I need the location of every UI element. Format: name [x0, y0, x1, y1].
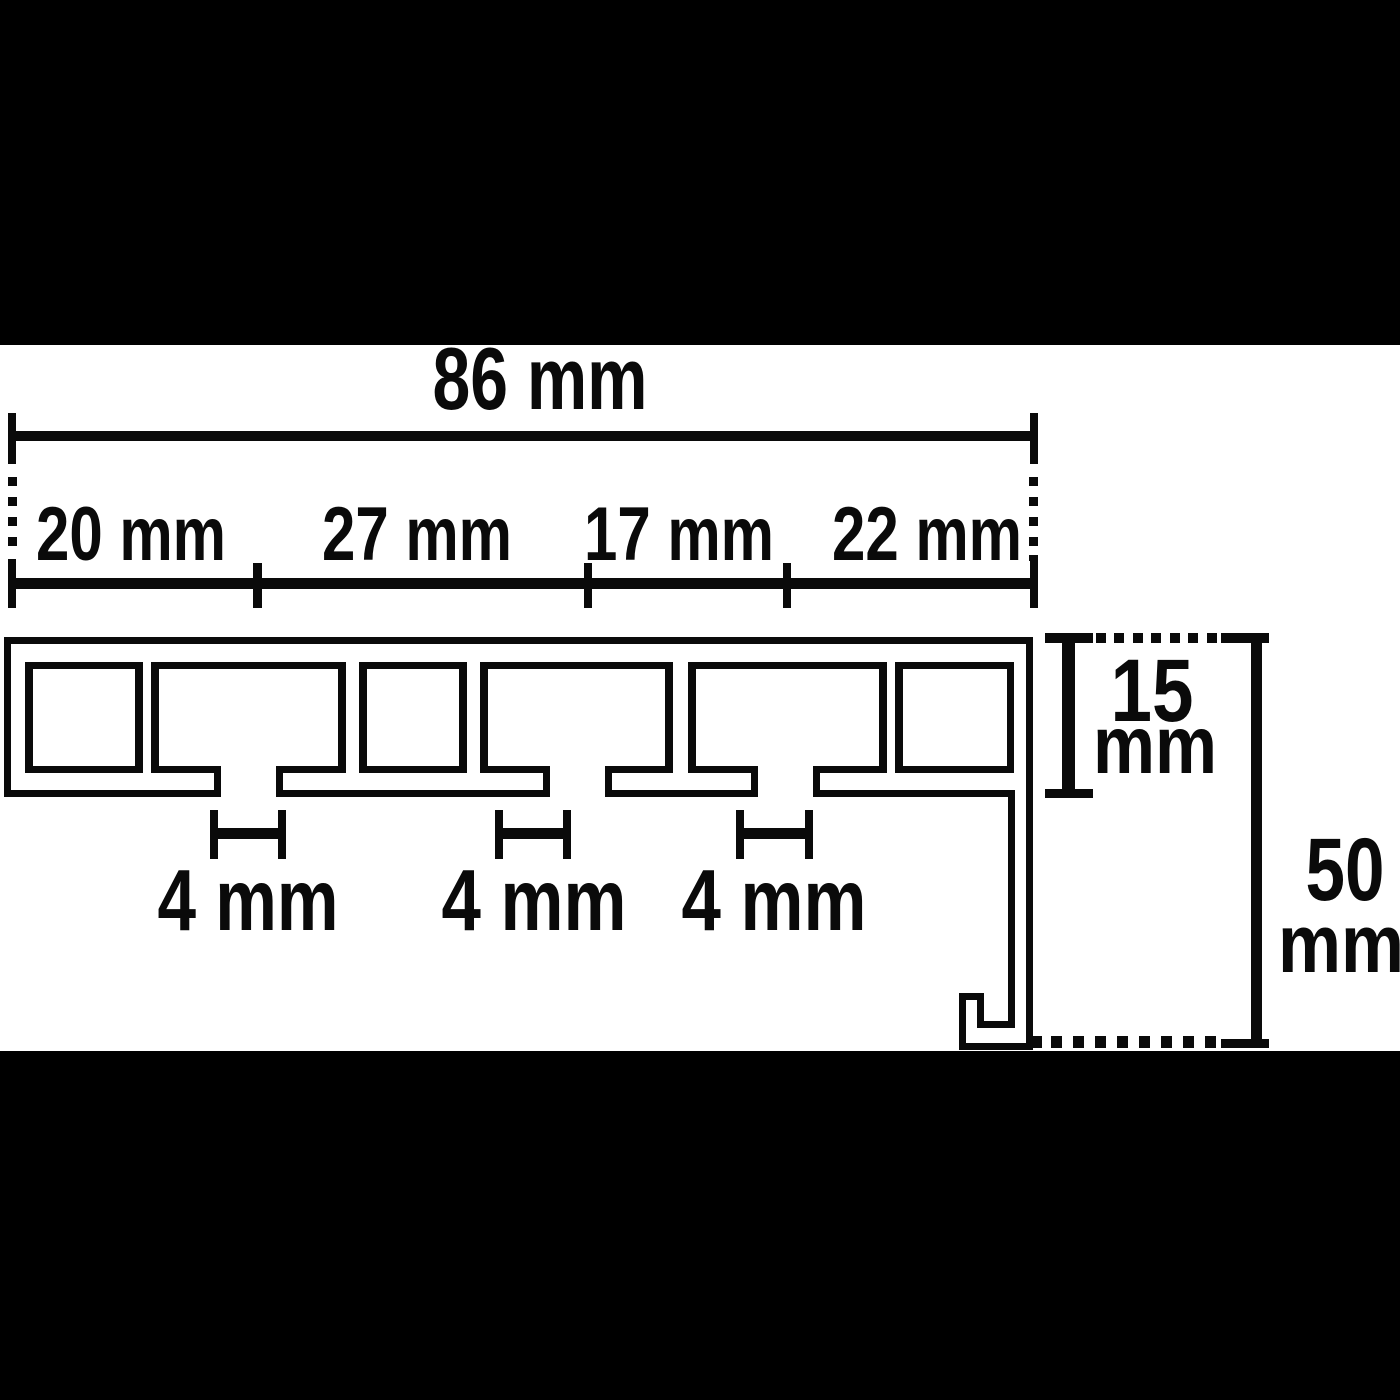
svg-text:4 mm: 4 mm [158, 852, 339, 949]
svg-text:4 mm: 4 mm [442, 852, 627, 949]
svg-text:86 mm: 86 mm [433, 329, 648, 428]
svg-text:22 mm: 22 mm [832, 492, 1022, 577]
svg-text:mm: mm [1093, 700, 1217, 791]
svg-text:20 mm: 20 mm [36, 492, 226, 577]
svg-text:17 mm: 17 mm [584, 492, 774, 577]
svg-text:27 mm: 27 mm [322, 492, 512, 577]
svg-text:4 mm: 4 mm [682, 852, 867, 949]
svg-text:mm: mm [1278, 897, 1400, 990]
